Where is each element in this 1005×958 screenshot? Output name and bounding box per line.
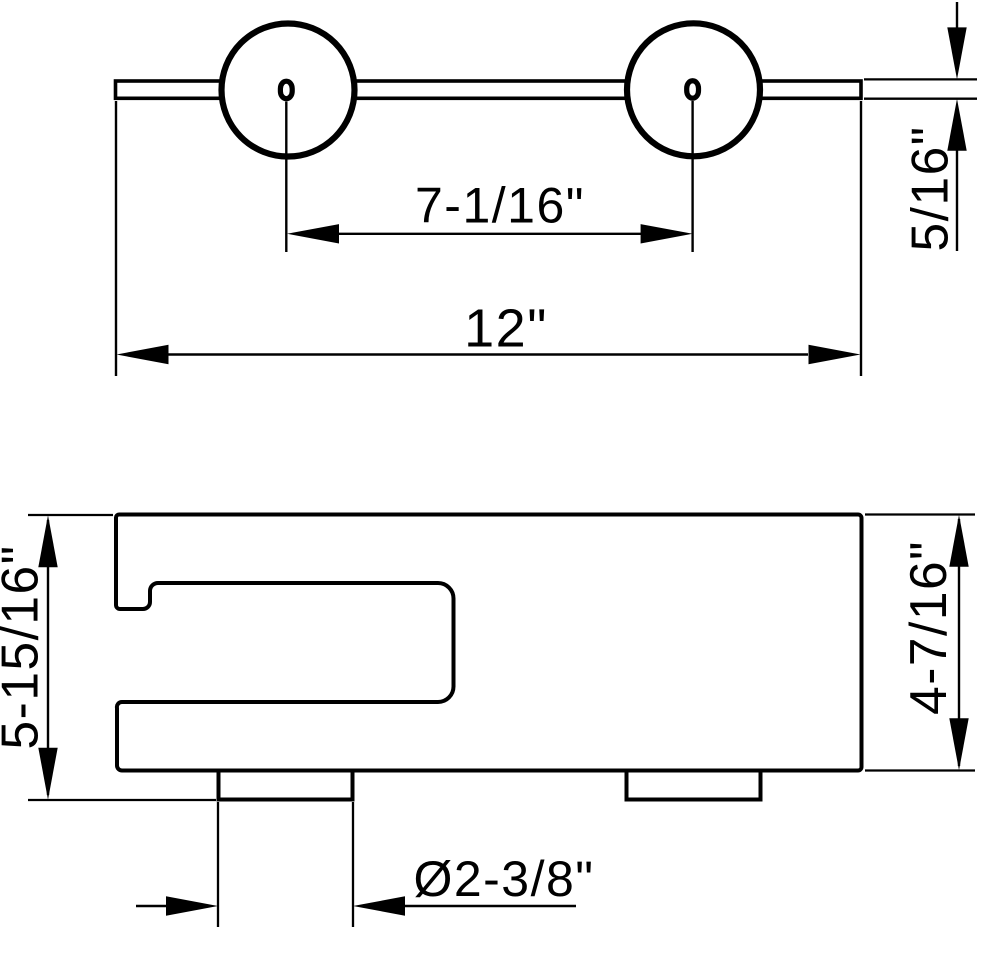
svg-text:5-15/16": 5-15/16" <box>0 545 49 750</box>
svg-text:12": 12" <box>464 299 548 359</box>
svg-text:4-7/16": 4-7/16" <box>899 540 957 715</box>
svg-text:7-1/16": 7-1/16" <box>415 178 585 234</box>
svg-text:Ø2-3/8": Ø2-3/8" <box>413 851 594 907</box>
svg-text:5/16": 5/16" <box>901 125 959 251</box>
